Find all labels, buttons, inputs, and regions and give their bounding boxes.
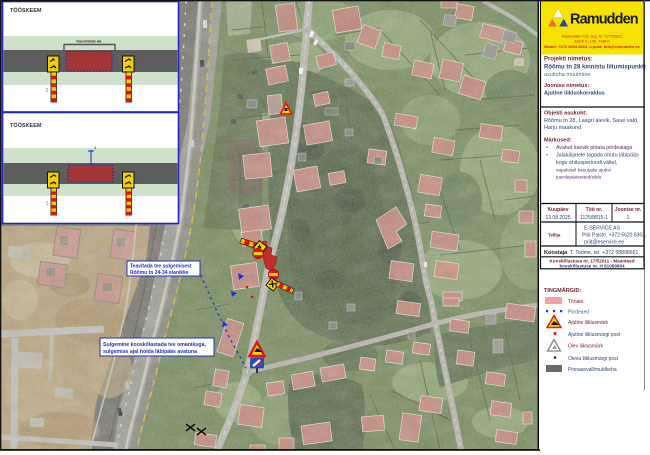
svg-text:TÖÖSKEEM: TÖÖSKEEM <box>10 122 42 129</box>
svg-text:Ajutine liiklusmärk: Ajutine liiklusmärk <box>568 320 609 326</box>
svg-text:Olev liiklusmärk: Olev liiklusmärk <box>568 344 604 350</box>
svg-text:Rõõmu tn 24-34 elanikke: Rõõmu tn 24-34 elanikke <box>130 270 189 276</box>
svg-text:priit@eservice.ee: priit@eservice.ee <box>584 240 624 246</box>
svg-text:Ajutine liikluskorraldus: Ajutine liikluskorraldus <box>544 91 605 97</box>
svg-text:Kuupäev: Kuupäev <box>547 207 568 213</box>
svg-text:1,5: 1,5 <box>134 175 138 180</box>
svg-text:Teavitada tee sulgemisest: Teavitada tee sulgemisest <box>130 264 192 270</box>
svg-text:Töö nr.: Töö nr. <box>586 207 603 213</box>
svg-text:Ajutine liiklusmärgi post: Ajutine liiklusmärgi post <box>568 332 621 338</box>
svg-text:Koostaja: Koostaja <box>544 250 568 256</box>
svg-text:kooskõlastuse nr. H 81089864: kooskõlastuse nr. H 81089864 <box>559 264 625 269</box>
svg-text:Kaevetööde ala: Kaevetööde ala <box>77 40 102 44</box>
svg-text:asukoha muutmine: asukoha muutmine <box>544 72 590 78</box>
svg-text:juurdepääsuteid/sildu: juurdepääsuteid/sildu <box>555 175 602 181</box>
svg-text:Sulgemine kooskõlastada tee om: Sulgemine kooskõlastada tee omanikuga, <box>103 342 206 348</box>
svg-text:Harju maakond: Harju maakond <box>544 125 581 131</box>
svg-text:1: 1 <box>627 215 630 221</box>
svg-text:TINGMÄRGID:: TINGMÄRGID: <box>544 287 581 294</box>
svg-text:E-SERVICE AS: E-SERVICE AS <box>584 226 620 232</box>
svg-text:•: • <box>546 153 548 159</box>
svg-text:Tellija: Tellija <box>548 233 561 238</box>
svg-text:Objekti asukoht:: Objekti asukoht: <box>544 111 587 117</box>
svg-text:Jalakäijatele tagada ohutu läb: Jalakäijatele tagada ohutu läbipääs <box>556 153 639 159</box>
svg-text:1125/8815-1: 1125/8815-1 <box>580 215 608 221</box>
svg-text:Mobiil: +372 5304 0063, e-post: Mobiil: +372 5304 0063, e-post: info@ram… <box>544 44 641 49</box>
svg-text:Rõõmu tn 28 kinnistu liitumisp: Rõõmu tn 28 kinnistu liitumispunkti <box>544 65 646 71</box>
svg-text:Rõõmu tn 28, Laagri alevik, Sa: Rõõmu tn 28, Laagri alevik, Saue vald, <box>544 118 639 124</box>
svg-text:T. Toome, tel. +372 58898651: T. Toome, tel. +372 58898651 <box>570 250 639 256</box>
svg-text:Piirdeaed: Piirdeaed <box>568 310 589 316</box>
svg-text:Oleva liiklusmärgi post: Oleva liiklusmärgi post <box>568 356 619 362</box>
svg-text:sulgemise ajal hoida läbipääs: sulgemise ajal hoida läbipääs avatuna <box>103 349 197 355</box>
svg-text:2,5: 2,5 <box>45 87 49 92</box>
svg-text:Avatud kaevik piirata piirdeai: Avatud kaevik piirata piirdeaiaga <box>556 145 632 151</box>
svg-text:2,5: 2,5 <box>45 200 49 205</box>
svg-text:Tööala: Tööala <box>568 299 584 305</box>
svg-text:13.08.2025: 13.08.2025 <box>545 215 570 221</box>
svg-text:Märkused:: Märkused: <box>544 138 572 144</box>
svg-text:1,5: 1,5 <box>134 59 138 64</box>
svg-text:Priit Paiste, +372 5620 8363,: Priit Paiste, +372 5620 8363, <box>582 233 646 239</box>
svg-text:Pinnasevall/muldkeha: Pinnasevall/muldkeha <box>568 367 617 373</box>
svg-text:•: • <box>546 145 548 151</box>
svg-text:vajadusel kasutada ajutisi: vajadusel kasutada ajutisi <box>556 168 611 174</box>
svg-text:Joonise nr.: Joonise nr. <box>615 207 642 213</box>
svg-text:TÖÖSKEEM: TÖÖSKEEM <box>10 7 42 14</box>
svg-text:Artelli tn 10b, Tallinn: Artelli tn 10b, Tallinn <box>574 39 610 44</box>
svg-text:Projekti nimetus:: Projekti nimetus: <box>544 57 593 63</box>
svg-text:kogu ehitusperioodi vältel,: kogu ehitusperioodi vältel, <box>556 160 617 166</box>
svg-text:Joonise nimetus:: Joonise nimetus: <box>544 83 589 89</box>
svg-text:Ramudden: Ramudden <box>570 12 638 28</box>
